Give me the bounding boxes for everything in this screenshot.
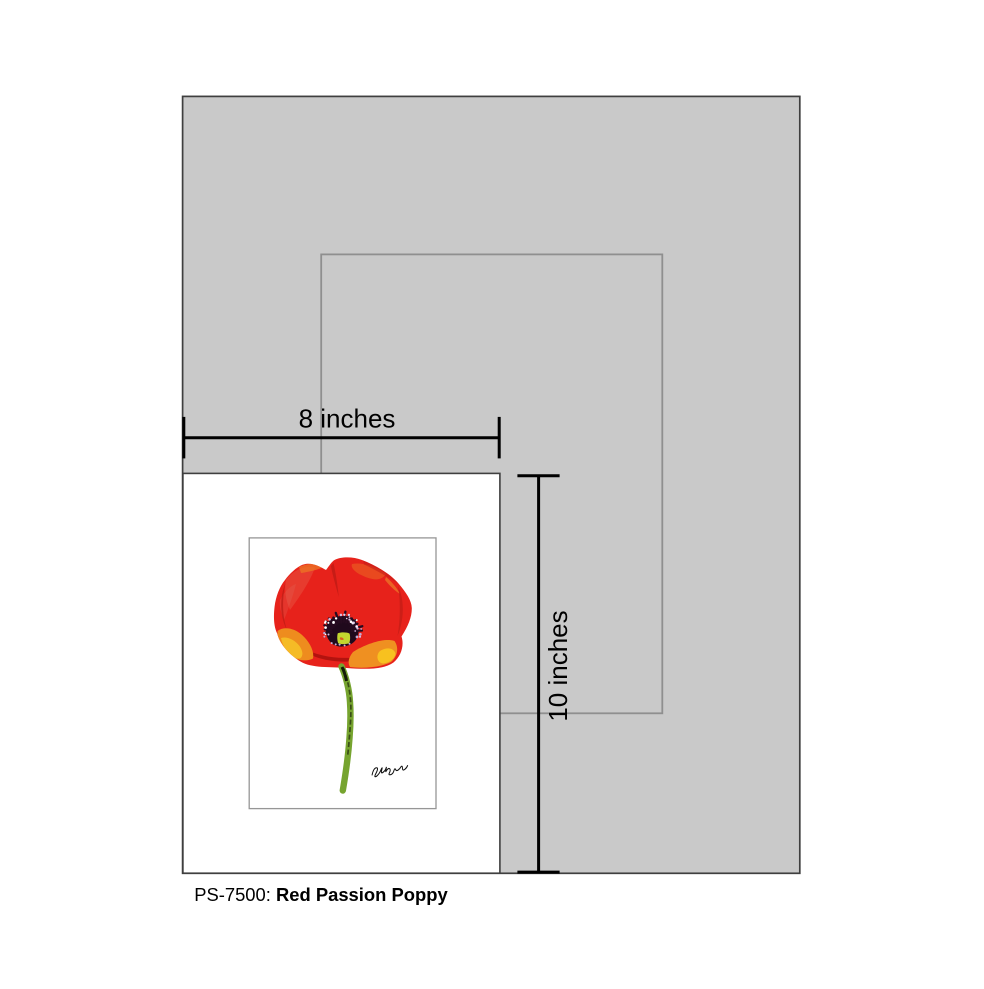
svg-text:10 inches: 10 inches xyxy=(543,610,573,721)
svg-text:8 inches: 8 inches xyxy=(299,403,396,433)
svg-text:PS-7500: Red Passion Poppy: PS-7500: Red Passion Poppy xyxy=(194,884,448,905)
